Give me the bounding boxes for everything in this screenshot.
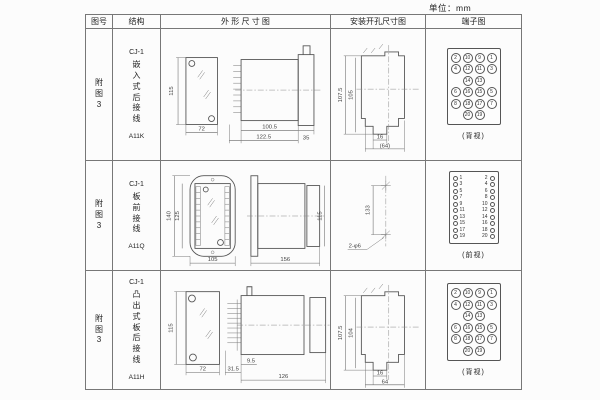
terminal-row: 2019	[451, 110, 497, 120]
dim-v-inner: 105	[348, 89, 354, 100]
terminal-circle: 14	[463, 76, 473, 86]
terminal-hole	[453, 182, 458, 187]
dim-front-h-outer: 140	[166, 210, 172, 221]
terminal-row: 1112	[453, 208, 495, 213]
fig-no-label: 附图3	[94, 314, 105, 346]
terminal-number: 19	[460, 234, 466, 239]
dim-front-h: 115	[169, 85, 175, 95]
terminal-left-pair: 3	[453, 182, 463, 187]
terminal-circle: 20	[463, 346, 473, 356]
dim-v-outer: 107.5	[337, 325, 343, 340]
terminal-hole	[453, 234, 458, 239]
terminal-circle: 6	[451, 323, 461, 333]
terminal-circle: 12	[463, 300, 473, 310]
terminal-cell-a11k: 2109141211314136161558181772019 (背视)	[426, 29, 521, 161]
terminal-number: 11	[460, 208, 465, 213]
terminal-circle: 19	[475, 110, 485, 120]
terminal-row: 818177	[451, 334, 497, 344]
terminal-hole	[490, 208, 495, 213]
terminal-hole	[490, 215, 495, 220]
terminal-row: 1413	[451, 76, 497, 86]
terminal-left-pair: 9	[453, 202, 463, 207]
terminal-hole	[490, 228, 495, 233]
terminal-hole	[490, 221, 495, 226]
terminal-circle: 3	[487, 64, 497, 74]
terminal-circle: 7	[487, 334, 497, 344]
terminal-circle: 4	[451, 300, 461, 310]
series-label: CJ-1	[129, 181, 144, 188]
terminal-hole	[490, 189, 495, 194]
structure-cell-a11q: CJ-1 板前接线 A11Q	[113, 161, 161, 271]
terminal-row: 21091	[451, 53, 497, 63]
terminal-right-pair: 4	[485, 182, 495, 187]
terminal-circle: 15	[475, 323, 485, 333]
dim-pin-gap: 9.5	[246, 358, 255, 364]
header-outline: 外 形 尺 寸 图	[161, 15, 331, 29]
terminal-circle: 9	[475, 288, 485, 298]
dim-front-h-inner: 125	[175, 210, 181, 221]
terminal-row: 1516	[453, 221, 495, 226]
terminal-number: 15	[460, 221, 466, 226]
dim-front-w: 72	[198, 126, 205, 132]
terminal-circle: 4	[451, 64, 461, 74]
terminal-circle: 10	[463, 53, 473, 63]
mounting-drawing-a11h: 107.5 104 16 64	[332, 272, 425, 388]
header-terminal: 端子图	[426, 15, 521, 29]
dim-pin-len: 31.5	[227, 366, 239, 372]
terminal-hole	[453, 208, 458, 213]
terminal-number: 9	[460, 202, 463, 207]
fig-no-label: 附图3	[94, 78, 105, 110]
terminal-cell-a11q: 1234567891011121314151617181920 (前视)	[426, 161, 521, 271]
header-fig-no: 图号	[86, 15, 113, 29]
terminal-circle: 1	[487, 53, 497, 63]
terminal-right-pair: 16	[482, 221, 495, 226]
outline-cell-a11k: 115 72 100.5 35	[161, 29, 331, 161]
terminal-circle: 16	[463, 323, 473, 333]
terminal-circle: 1	[487, 288, 497, 298]
terminal-circle: 17	[475, 334, 485, 344]
terminal-circle: 18	[463, 334, 473, 344]
structure-a11h: CJ-1 凸出式板后接线 A11H	[129, 279, 145, 381]
datasheet-page: 单位：mm 图号 结构 外 形 尺 寸 图 安装开孔尺寸图 端子图 附图3 CJ…	[0, 0, 600, 400]
series-label: CJ-1	[129, 279, 144, 286]
dim-front-w: 105	[207, 257, 218, 263]
terminal-number: 17	[460, 228, 466, 233]
dim-front-w: 72	[199, 366, 206, 372]
terminal-hole	[453, 215, 458, 220]
header-mounting: 安装开孔尺寸图	[331, 15, 426, 29]
terminal-number: 7	[460, 195, 463, 200]
terminal-number: 16	[482, 221, 488, 226]
terminal-number: 4	[485, 182, 488, 187]
terminal-right-pair: 12	[482, 208, 495, 213]
fig-no-cell-a11h: 附图3	[86, 271, 113, 389]
terminal-circle: 20	[463, 110, 473, 120]
mounting-drawing-a11k: 107.5 105 16 (64)	[332, 30, 425, 160]
terminal-row: 12	[453, 176, 495, 181]
fig-no-cell-a11k: 附图3	[86, 29, 113, 161]
terminal-circle: 17	[475, 99, 485, 109]
terminal-view-label: (背视)	[462, 367, 485, 377]
structure-cell-a11k: CJ-1 嵌入式后接线 A11K	[113, 29, 161, 161]
terminal-number: 10	[482, 202, 488, 207]
dim-h-outer: 64	[381, 379, 388, 385]
terminal-circle: 2	[451, 288, 461, 298]
terminal-circle: 19	[475, 346, 485, 356]
terminal-row: 2019	[451, 346, 497, 356]
terminal-left-pair: 5	[453, 189, 463, 194]
side-view: 156 115	[246, 175, 325, 265]
terminal-circle: 5	[487, 323, 497, 333]
terminal-circle: 11	[475, 64, 485, 74]
terminal-left-pair: 13	[453, 215, 466, 220]
mounting-cell-a11q: 133 2-φ6	[331, 161, 426, 271]
terminal-number: 13	[460, 215, 466, 220]
terminal-row: 56	[453, 189, 495, 194]
terminal-row: 1920	[453, 234, 495, 239]
spec-table: 图号 结构 外 形 尺 寸 图 安装开孔尺寸图 端子图 附图3 CJ-1 嵌入式…	[85, 14, 522, 390]
terminal-row: 616155	[451, 323, 497, 333]
terminal-right-pair: 20	[482, 234, 495, 239]
terminal-circle: 6	[451, 87, 461, 97]
terminal-hole	[490, 182, 495, 187]
terminal-hole	[490, 195, 495, 200]
terminal-hole	[453, 195, 458, 200]
terminal-number: 3	[460, 182, 463, 187]
hole-callout: 2-φ6	[348, 243, 360, 249]
terminal-right-pair: 2	[485, 176, 495, 181]
terminal-circle: 18	[463, 99, 473, 109]
terminal-left-pair: 11	[453, 208, 465, 213]
terminal-number: 18	[482, 228, 488, 233]
outline-drawing-a11k: 115 72 100.5 35	[162, 30, 330, 160]
terminal-cell-a11h: 2109141211314136161558181772019 (背视)	[426, 271, 521, 389]
terminal-right-pair: 18	[482, 228, 495, 233]
dim-h-inner: 16	[376, 134, 383, 140]
side-view: 9.5 31.5 126	[225, 287, 329, 383]
dim-h-inner: 16	[376, 371, 383, 377]
terminal-hole	[453, 228, 458, 233]
terminal-number: 12	[482, 208, 488, 213]
terminal-view-label: (背视)	[462, 131, 485, 141]
structure-cell-a11h: CJ-1 凸出式板后接线 A11H	[113, 271, 161, 389]
terminal-row: 1413	[451, 311, 497, 321]
terminal-left-pair: 17	[453, 228, 466, 233]
terminal-circle: 5	[487, 87, 497, 97]
structure-label: 凸出式板后接线	[131, 290, 142, 366]
terminal-row: 21091	[451, 288, 497, 298]
terminal-row: 910	[453, 202, 495, 207]
side-view: 100.5 35 122.5	[229, 45, 322, 142]
terminal-row: 1718	[453, 228, 495, 233]
model-label: A11K	[129, 133, 144, 140]
mounting-cell-a11k: 107.5 105 16 (64)	[331, 29, 426, 161]
dim-v-outer: 107.5	[337, 86, 343, 101]
dim-body-len: 100.5	[262, 124, 277, 130]
terminal-left-pair: 1	[453, 176, 463, 181]
terminal-right-pair: 14	[482, 215, 495, 220]
terminal-hole	[453, 221, 458, 226]
mounting-cell-a11h: 107.5 104 16 64	[331, 271, 426, 389]
terminal-diagram: 1234567891011121314151617181920	[449, 171, 499, 245]
front-view: 115 72	[169, 57, 217, 135]
terminal-left-pair: 19	[453, 234, 466, 239]
terminal-circle: 8	[451, 99, 461, 109]
front-view: 140 125 105	[166, 175, 235, 265]
terminal-circle: 15	[475, 87, 485, 97]
terminal-right-pair: 8	[485, 195, 495, 200]
dim-hole-span: 133	[365, 205, 371, 215]
terminal-hole	[453, 202, 458, 207]
terminal-number: 5	[460, 189, 463, 194]
outline-cell-a11h: 115 72 9.5	[161, 271, 331, 389]
terminal-row: 616155	[451, 87, 497, 97]
terminal-left-pair: 7	[453, 195, 463, 200]
terminal-number: 1	[460, 176, 463, 181]
terminal-row: 34	[453, 182, 495, 187]
dim-total-len: 122.5	[256, 134, 271, 140]
terminal-circle: 11	[475, 300, 485, 310]
dim-h-outer: (64)	[379, 143, 389, 149]
terminal-number: 2	[485, 176, 488, 181]
terminal-diagram: 2109141211314136161558181772019	[447, 48, 501, 126]
front-view: 115 72	[168, 292, 219, 376]
terminal-circle: 9	[475, 53, 485, 63]
terminal-circle: 14	[463, 311, 473, 321]
terminal-circle: 12	[463, 64, 473, 74]
terminal-number: 20	[482, 234, 488, 239]
terminal-row: 412113	[451, 64, 497, 74]
terminal-hole	[490, 202, 495, 207]
terminal-circle: 7	[487, 99, 497, 109]
terminal-circle: 16	[463, 87, 473, 97]
terminal-circle: 8	[451, 334, 461, 344]
outline-drawing-a11q: 140 125 105 156	[162, 162, 330, 270]
terminal-circle: 13	[475, 76, 485, 86]
terminal-number: 14	[482, 215, 488, 220]
terminal-row: 1314	[453, 215, 495, 220]
terminal-right-pair: 6	[485, 189, 495, 194]
terminal-circle: 10	[463, 288, 473, 298]
structure-label: 板前接线	[131, 192, 142, 235]
terminal-number: 8	[485, 195, 488, 200]
mounting-drawing-a11q: 133 2-φ6	[332, 162, 425, 270]
unit-label: 单位：mm	[429, 2, 471, 14]
terminal-circle: 2	[451, 53, 461, 63]
terminal-hole	[490, 176, 495, 181]
terminal-row: 412113	[451, 300, 497, 310]
terminal-hole	[490, 234, 495, 239]
header-structure: 结构	[113, 15, 161, 29]
structure-label: 嵌入式后接线	[131, 60, 142, 125]
terminal-view-label: (前视)	[462, 250, 485, 260]
terminal-hole	[453, 189, 458, 194]
terminal-diagram: 2109141211314136161558181772019	[447, 283, 501, 361]
dim-flange: 35	[302, 135, 309, 141]
terminal-row: 818177	[451, 99, 497, 109]
terminal-row: 78	[453, 195, 495, 200]
fig-no-label: 附图3	[94, 199, 105, 231]
dim-side-len: 156	[280, 257, 291, 263]
outline-cell-a11q: 140 125 105 156	[161, 161, 331, 271]
terminal-left-pair: 15	[453, 221, 466, 226]
terminal-hole	[453, 176, 458, 181]
terminal-circle: 13	[475, 311, 485, 321]
terminal-right-pair: 10	[482, 202, 495, 207]
terminal-circle: 3	[487, 300, 497, 310]
outline-drawing-a11h: 115 72 9.5	[162, 272, 330, 388]
model-label: A11H	[129, 374, 145, 381]
dim-v-inner: 104	[348, 327, 354, 338]
structure-a11q: CJ-1 板前接线 A11Q	[128, 181, 144, 250]
dim-side-h: 115	[317, 210, 323, 220]
series-label: CJ-1	[129, 49, 144, 56]
dim-side-len: 126	[278, 374, 289, 380]
terminal-number: 6	[485, 189, 488, 194]
fig-no-cell-a11q: 附图3	[86, 161, 113, 271]
structure-a11k: CJ-1 嵌入式后接线 A11K	[129, 49, 144, 140]
dim-front-h: 115	[168, 323, 174, 333]
model-label: A11Q	[128, 243, 144, 250]
